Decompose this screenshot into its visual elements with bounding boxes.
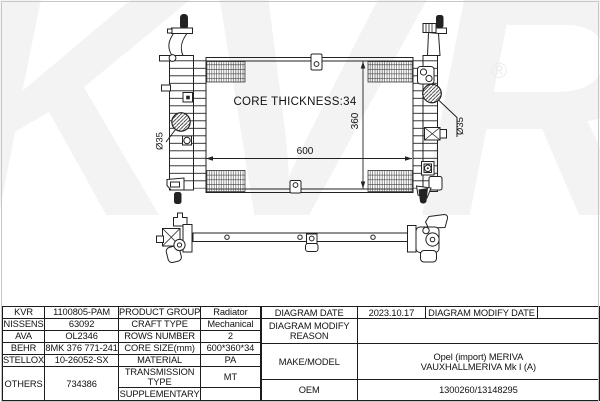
diagram-modify-reason-value — [357, 319, 599, 344]
table-row: DIAGRAM DATE 2023.10.17 DIAGRAM MODIFY D… — [261, 307, 599, 319]
right-mount-peg — [419, 188, 429, 204]
fin-block-top-left — [207, 62, 246, 83]
code-cell: 1100805-PAM — [45, 307, 119, 319]
property-cell: TRANSMISSION TYPE — [119, 367, 201, 388]
brand-cell: OTHERS — [3, 367, 45, 401]
oem-value: 1300260/13148295 — [357, 380, 599, 401]
value-cell: Radiator — [201, 307, 260, 319]
bottom-mount-tab — [290, 181, 301, 194]
diagram-date-value: 2023.10.17 — [357, 307, 425, 319]
property-cell: SUPPLEMENTARY — [119, 388, 201, 401]
radiator-spec-sheet: { "watermark": { "brand": "KVR", "regist… — [0, 0, 600, 402]
right-top-peg — [436, 15, 444, 28]
right-tank — [413, 15, 457, 204]
table-row: NISSENS 63092 CRAFT TYPE Mechanical — [3, 319, 261, 331]
table-row: STELLOX 10-26052-SX MATERIAL PA — [3, 355, 261, 367]
table-row: MAKE/MODEL Opel (import) MERIVA VAUXHALL… — [261, 344, 599, 380]
right-port-diameter-label: Ø35 — [455, 117, 466, 135]
code-cell: OL2346 — [45, 331, 119, 343]
code-cell: 10-26052-SX — [45, 355, 119, 367]
value-cell: 2 — [201, 331, 260, 343]
profile-left-assembly — [157, 213, 193, 263]
diagram-modify-reason-label: DIAGRAM MODIFY REASON — [261, 319, 357, 344]
left-port — [172, 113, 190, 131]
brand-cell: STELLOX — [3, 355, 45, 367]
cross-reference-table: KVR 1100805-PAM PRODUCT GROUP Radiator N… — [2, 306, 261, 401]
value-cell — [201, 388, 260, 401]
property-cell: CORE SIZE(mm) — [119, 343, 201, 355]
drain-plug — [425, 128, 447, 141]
make-model-line2: VAUXHALLMERIVA Mk I (A) — [358, 362, 599, 372]
value-cell: MT — [201, 367, 260, 388]
table-row: OEM 1300260/13148295 — [261, 380, 599, 401]
sensor-bracket — [418, 67, 435, 85]
code-cell: 63092 — [45, 319, 119, 331]
table-row: DIAGRAM MODIFY REASON — [261, 319, 599, 344]
vehicle-info-table: DIAGRAM DATE 2023.10.17 DIAGRAM MODIFY D… — [261, 306, 600, 401]
left-mount-peg — [174, 192, 182, 204]
property-cell: CRAFT TYPE — [119, 319, 201, 331]
fin-block-bottom-left — [207, 171, 246, 192]
core-height-label: 360 — [350, 112, 361, 129]
spec-table: KVR 1100805-PAM PRODUCT GROUP Radiator N… — [2, 306, 600, 401]
table-row: BEHR 8MK 376 771-241 CORE SIZE(mm) 600*3… — [3, 343, 261, 355]
filler-cap — [180, 14, 188, 30]
table-row: OTHERS 734386 TRANSMISSION TYPE MT — [3, 367, 261, 388]
table-row: AVA OL2346 ROWS NUMBER 2 — [3, 331, 261, 343]
make-model-line1: Opel (import) MERIVA — [358, 352, 599, 362]
profile-right-assembly — [408, 215, 448, 263]
value-cell: Mechanical — [201, 319, 260, 331]
brand-cell: AVA — [3, 331, 45, 343]
radiator-technical-drawing: CORE THICKNESS:34 600 360 Ø35 Ø35 — [0, 0, 600, 300]
make-model-label: MAKE/MODEL — [261, 344, 357, 380]
fin-block-bottom-right — [368, 171, 413, 192]
left-port-diameter-label: Ø35 — [155, 132, 166, 150]
diagram-modify-date-value — [537, 307, 599, 319]
lower-fitting — [422, 162, 435, 176]
fin-block-top-right — [368, 62, 413, 83]
make-model-value: Opel (import) MERIVA VAUXHALLMERIVA Mk I… — [357, 344, 599, 380]
value-cell: 600*360*34 — [201, 343, 260, 355]
table-row: KVR 1100805-PAM PRODUCT GROUP Radiator — [3, 307, 261, 319]
core-width-label: 600 — [297, 146, 314, 157]
top-mount-tab — [311, 54, 322, 70]
brand-cell: BEHR — [3, 343, 45, 355]
radiator-core — [206, 54, 413, 193]
value-cell: PA — [201, 355, 260, 367]
diagram-modify-date-label: DIAGRAM MODIFY DATE — [426, 307, 538, 319]
property-cell: ROWS NUMBER — [119, 331, 201, 343]
diagram-date-label: DIAGRAM DATE — [261, 307, 357, 319]
property-cell: MATERIAL — [119, 355, 201, 367]
brand-cell: NISSENS — [3, 319, 45, 331]
core-thickness-label: CORE THICKNESS:34 — [233, 96, 356, 108]
left-tank — [160, 14, 207, 204]
code-cell: 8MK 376 771-241 — [45, 343, 119, 355]
oem-label: OEM — [261, 380, 357, 401]
brand-cell: KVR — [3, 307, 45, 319]
dimension-360 — [361, 62, 366, 189]
code-cell: 734386 — [45, 367, 119, 401]
property-cell: PRODUCT GROUP — [119, 307, 201, 319]
bottom-profile-view — [157, 213, 448, 263]
